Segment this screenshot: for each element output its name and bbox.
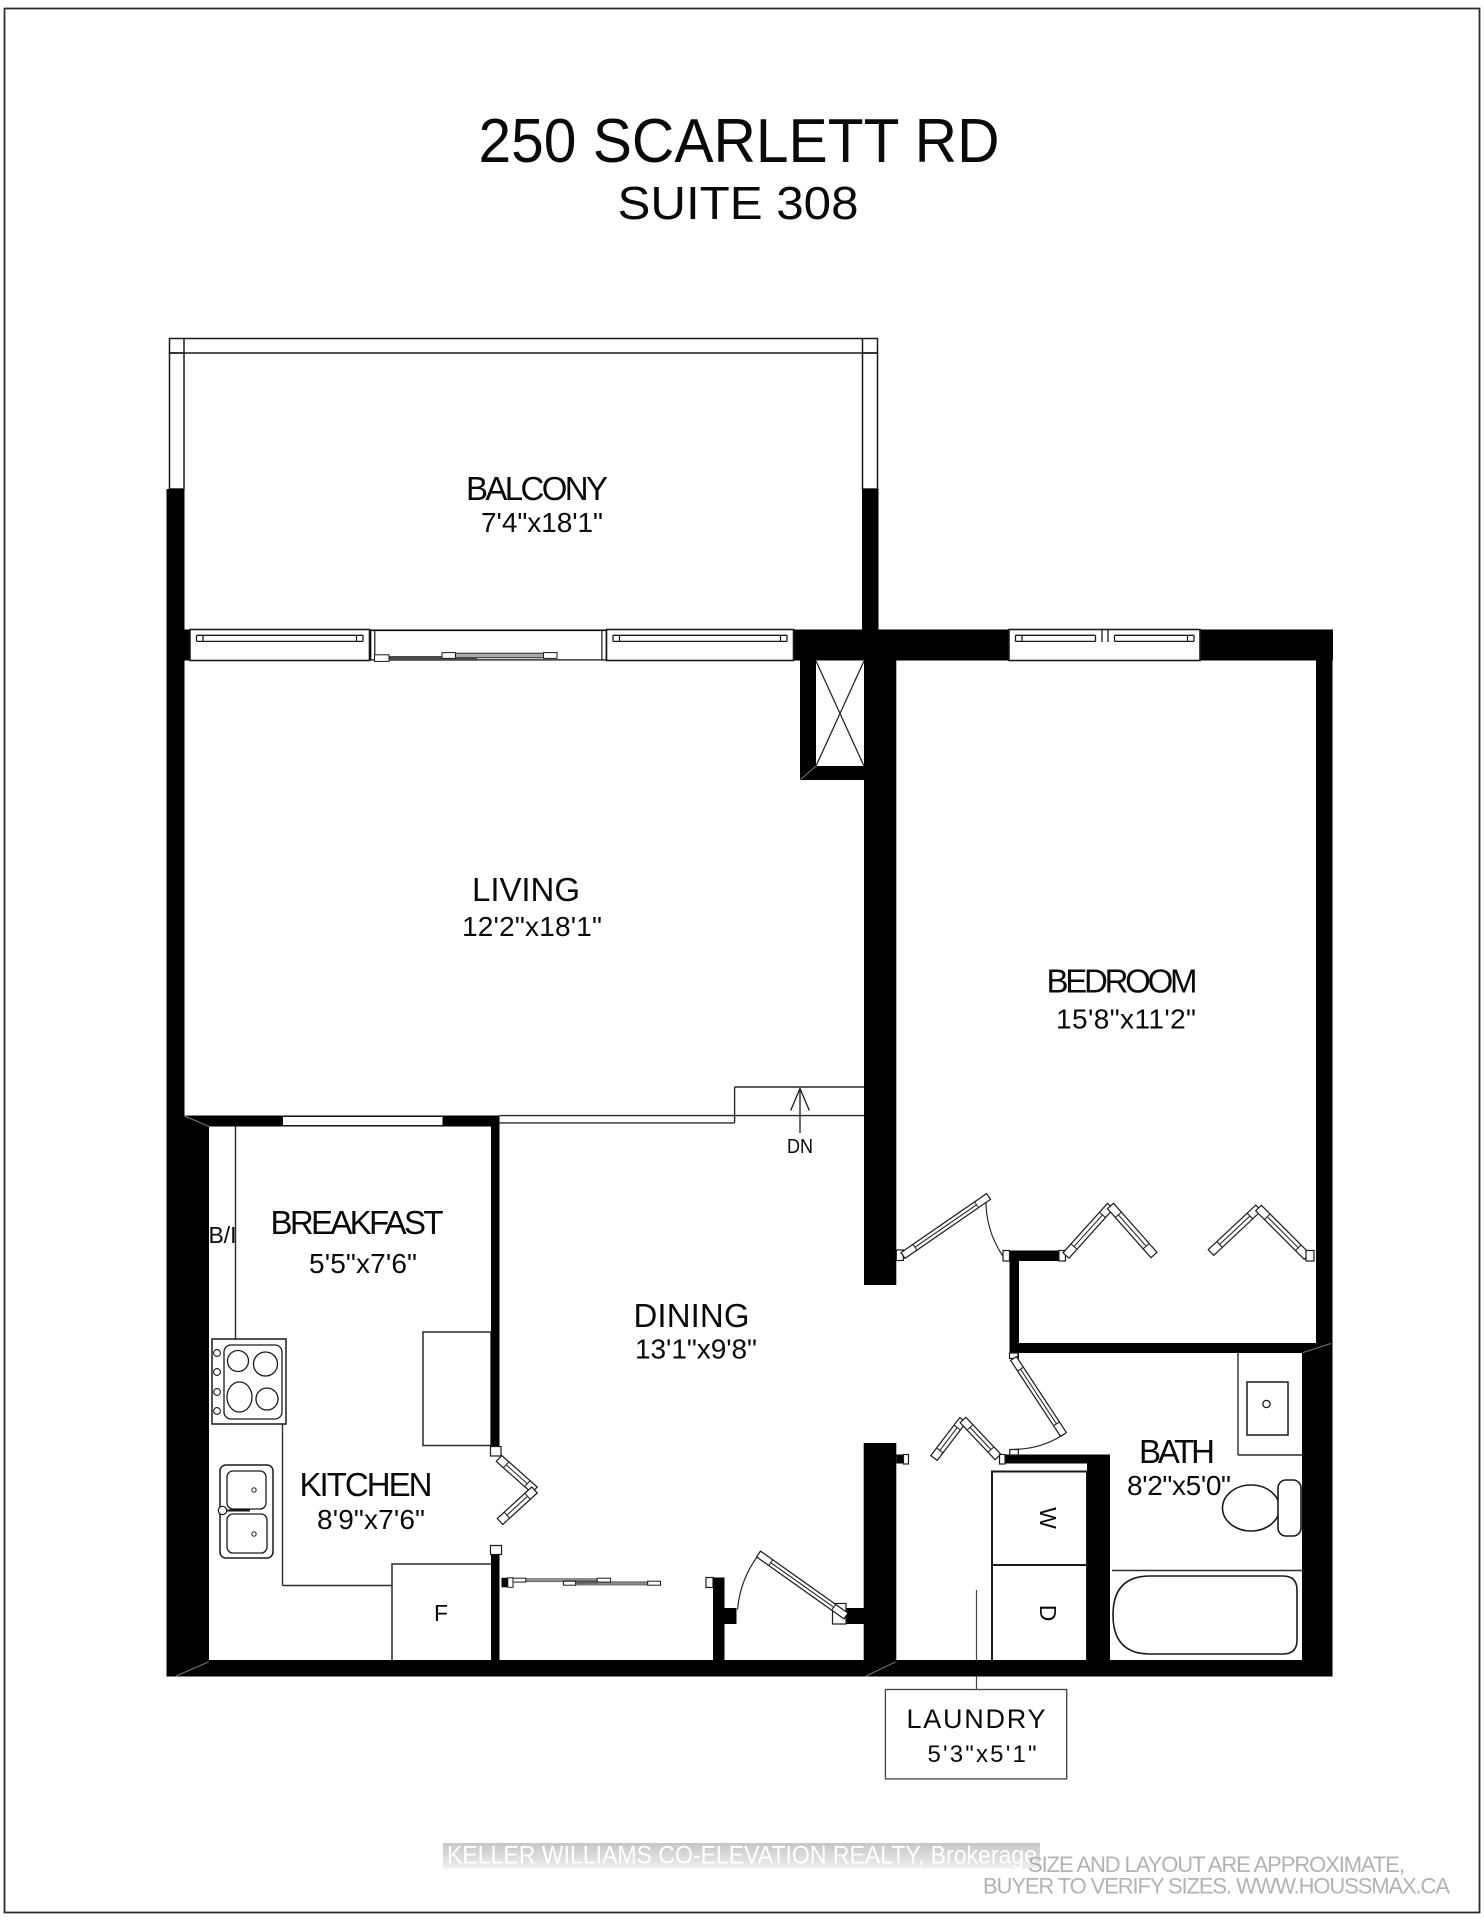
- svg-text:250 SCARLETT RD: 250 SCARLETT RD: [479, 107, 1000, 176]
- svg-text:LIVING: LIVING: [472, 871, 580, 908]
- svg-text:15'8"x11'2": 15'8"x11'2": [1056, 1004, 1196, 1035]
- svg-text:BALCONY: BALCONY: [466, 470, 608, 507]
- svg-text:BEDROOM: BEDROOM: [1047, 963, 1198, 1000]
- svg-text:B/I: B/I: [208, 1222, 236, 1248]
- svg-text:5'5"x7'6": 5'5"x7'6": [309, 1248, 417, 1279]
- svg-text:DINING: DINING: [634, 1297, 750, 1334]
- svg-text:12'2"x18'1": 12'2"x18'1": [462, 911, 602, 942]
- svg-text:F: F: [434, 1600, 448, 1626]
- svg-text:7'4"x18'1": 7'4"x18'1": [481, 507, 603, 538]
- svg-text:SUITE 308: SUITE 308: [618, 177, 859, 229]
- svg-text:13'1"x9'8": 13'1"x9'8": [635, 1334, 757, 1365]
- svg-text:W: W: [1035, 1507, 1061, 1529]
- svg-text:BREAKFAST: BREAKFAST: [271, 1204, 444, 1241]
- svg-text:5'3"x5'1": 5'3"x5'1": [928, 1741, 1037, 1768]
- svg-text:DN: DN: [787, 1136, 813, 1158]
- svg-text:8'9"x7'6": 8'9"x7'6": [317, 1504, 425, 1535]
- svg-text:BATH: BATH: [1139, 1433, 1215, 1470]
- svg-text:KELLER WILLIAMS CO-ELEVATION R: KELLER WILLIAMS CO-ELEVATION REALTY, Bro…: [447, 1842, 1037, 1870]
- svg-text:D: D: [1035, 1605, 1061, 1622]
- svg-text:LAUNDRY: LAUNDRY: [907, 1704, 1046, 1734]
- svg-text:KITCHEN: KITCHEN: [300, 1466, 433, 1503]
- svg-text:BUYER TO VERIFY SIZES. WWW.HOU: BUYER TO VERIFY SIZES. WWW.HOUSSMAX.CA: [983, 1874, 1450, 1899]
- svg-text:8'2"x5'0": 8'2"x5'0": [1127, 1470, 1231, 1501]
